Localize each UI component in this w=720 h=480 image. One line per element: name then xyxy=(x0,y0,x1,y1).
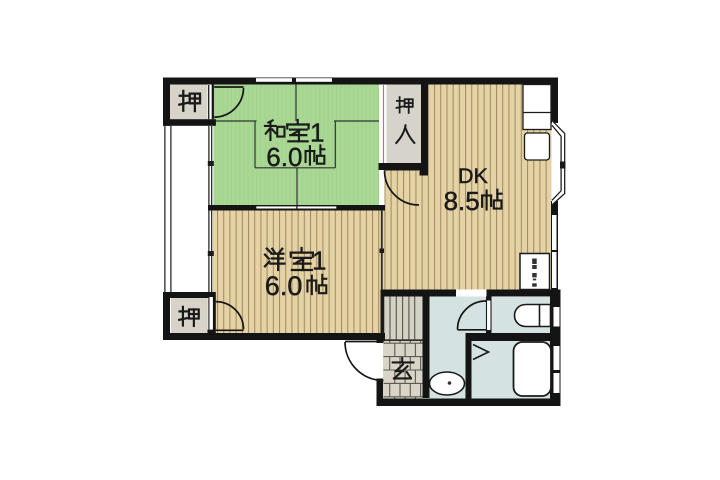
svg-text:DK: DK xyxy=(458,164,489,188)
svg-text:8.5: 8.5 xyxy=(444,186,480,216)
svg-text:6.0: 6.0 xyxy=(265,271,303,301)
svg-text:1: 1 xyxy=(310,117,324,147)
svg-text:6.0: 6.0 xyxy=(266,142,302,172)
svg-text:1: 1 xyxy=(312,246,326,276)
